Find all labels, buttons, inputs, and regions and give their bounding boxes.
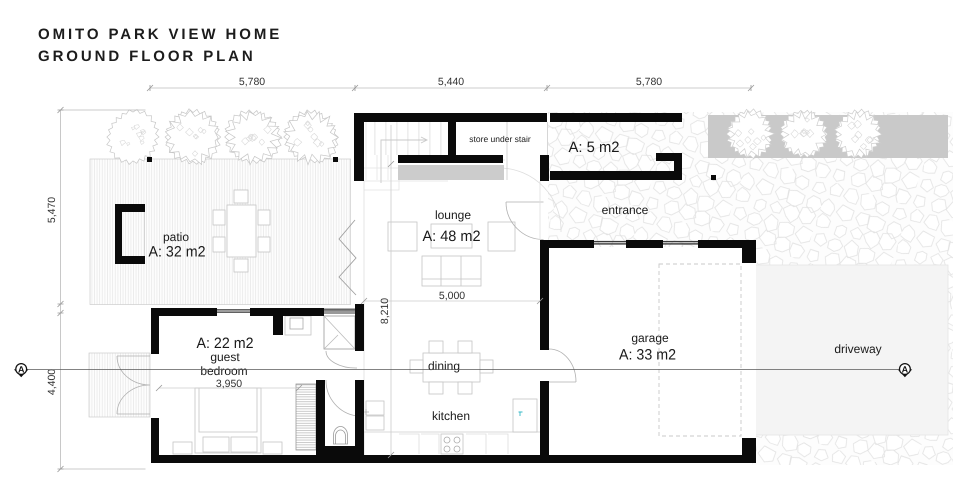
- svg-text:A: 5 m2: A: 5 m2: [569, 139, 620, 156]
- svg-text:4,400: 4,400: [46, 369, 58, 395]
- svg-text:driveway: driveway: [834, 342, 881, 356]
- svg-text:guest: guest: [210, 350, 240, 364]
- svg-text:OMITO PARK VIEW HOME: OMITO PARK VIEW HOME: [38, 26, 282, 43]
- svg-text:5,000: 5,000: [439, 290, 465, 302]
- svg-text:kitchen: kitchen: [432, 409, 470, 423]
- svg-text:lounge: lounge: [435, 208, 471, 222]
- svg-text:patio: patio: [163, 230, 189, 244]
- svg-text:bedroom: bedroom: [200, 364, 247, 378]
- svg-text:5,440: 5,440: [438, 76, 464, 88]
- svg-text:entrance: entrance: [602, 203, 649, 217]
- svg-text:8,210: 8,210: [379, 298, 391, 324]
- svg-text:dining: dining: [428, 359, 460, 373]
- svg-text:A: A: [18, 364, 25, 374]
- svg-text:5,470: 5,470: [46, 197, 58, 223]
- svg-text:5,780: 5,780: [239, 76, 265, 88]
- svg-text:5,780: 5,780: [636, 76, 662, 88]
- svg-text:garage: garage: [631, 331, 669, 345]
- svg-text:A: A: [902, 364, 909, 374]
- svg-text:A: 33 m2: A: 33 m2: [619, 347, 676, 364]
- svg-text:store under stair: store under stair: [469, 134, 531, 144]
- svg-text:A: 48 m2: A: 48 m2: [423, 228, 481, 245]
- svg-text:A: 32 m2: A: 32 m2: [149, 244, 206, 261]
- svg-text:3,950: 3,950: [216, 378, 242, 390]
- svg-text:GROUND FLOOR PLAN: GROUND FLOOR PLAN: [38, 48, 256, 65]
